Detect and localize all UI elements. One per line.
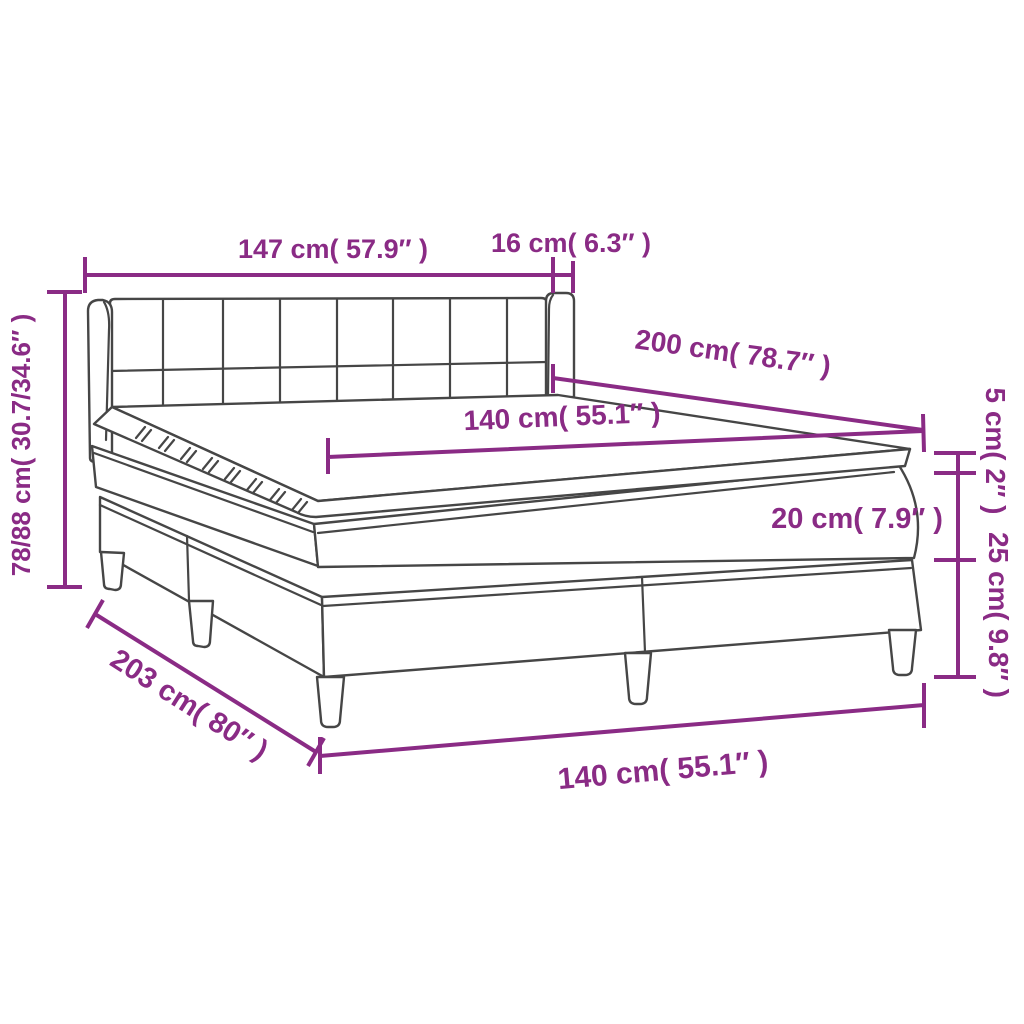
label-width-base: 140 cm( 55.1″ ) xyxy=(556,745,769,796)
label-overall-height: 78/88 cm( 30.7/34.6″ ) xyxy=(6,314,36,577)
bed-leg xyxy=(889,630,916,675)
bed-leg xyxy=(625,653,651,704)
bed-leg xyxy=(189,601,213,647)
bed-leg xyxy=(101,552,124,590)
label-length-base: 203 cm( 80″ ) xyxy=(105,643,274,767)
headboard-right-wing xyxy=(546,293,574,399)
bed-dimension-diagram: 147 cm( 57.9″ ) 16 cm( 6.3″ ) 78/88 cm( … xyxy=(0,0,1024,1024)
label-base-height: 25 cm( 9.8″ ) xyxy=(983,532,1014,698)
label-mattress-height: 20 cm( 7.9″ ) xyxy=(771,503,943,535)
dim-overall-height xyxy=(47,292,82,587)
bed-leg xyxy=(317,677,344,727)
label-side-wing-depth: 16 cm( 6.3″ ) xyxy=(491,228,651,258)
bed-dimension-diagram-page: 147 cm( 57.9″ ) 16 cm( 6.3″ ) 78/88 cm( … xyxy=(0,0,1024,1024)
label-length-top: 200 cm( 78.7″ ) xyxy=(633,323,832,381)
label-headboard-width: 147 cm( 57.9″ ) xyxy=(238,234,428,264)
base-foot-face xyxy=(322,560,921,677)
label-topper-height: 5 cm( 2″ ) xyxy=(980,387,1011,514)
dim-height-stack xyxy=(934,453,976,677)
dim-side-wing-depth xyxy=(553,261,573,293)
